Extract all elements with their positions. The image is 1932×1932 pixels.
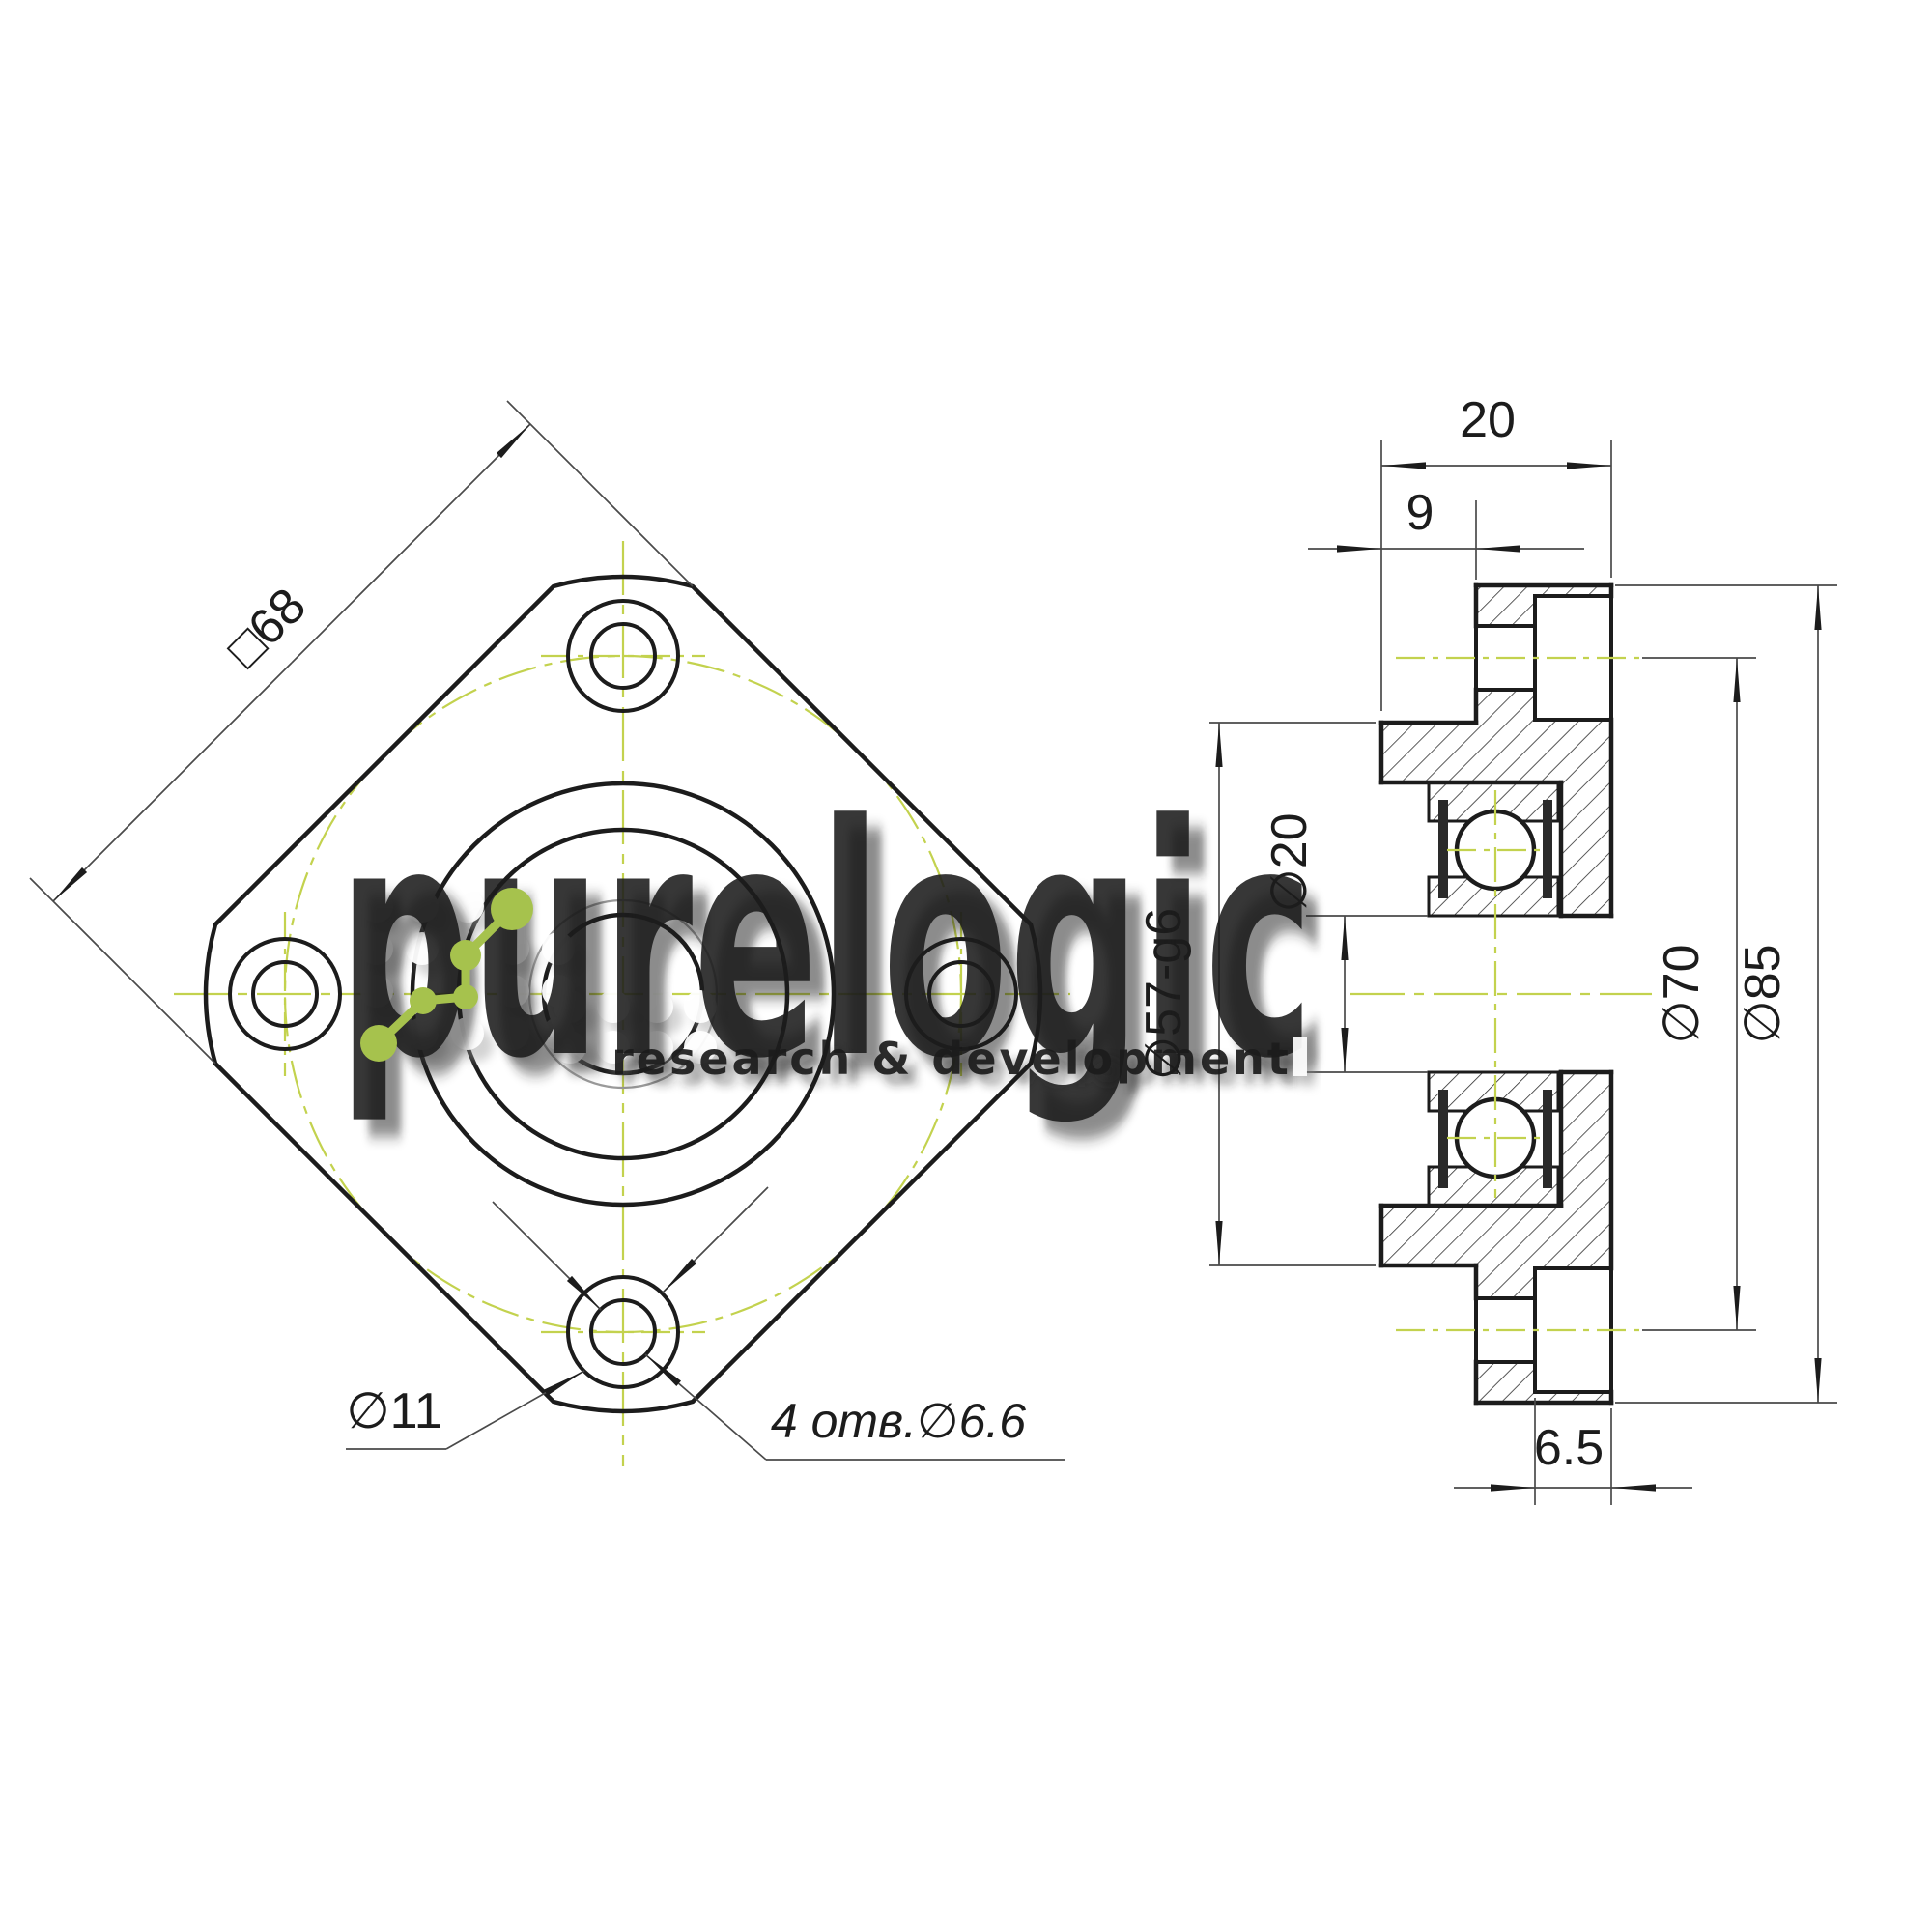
bearing-seal: [1543, 1090, 1552, 1188]
dim-bolt-circle: ∅70: [1654, 944, 1710, 1043]
logo-dot: [491, 888, 533, 930]
logo-dot: [453, 984, 478, 1009]
tagline-end-block: [1293, 1037, 1307, 1076]
drawing-page: □68 ∅11 4 отв.∅6.6: [0, 0, 1932, 1932]
dim-flange-diameter: ∅85: [1735, 944, 1791, 1043]
dim-line: [292, 424, 530, 663]
dim-square-size: □68: [216, 578, 317, 678]
logo-dot: [410, 987, 437, 1014]
hatch-wall-bottom: [1561, 1072, 1611, 1206]
logo-dot: [360, 1025, 397, 1062]
dim-counterbore-depth: 6.5: [1534, 1420, 1604, 1476]
extension-line: [30, 878, 215, 1064]
bearing-seal: [1543, 800, 1552, 898]
dim-overall-width: 20: [1460, 392, 1516, 448]
counterbore-depth-dimension: 6.5: [1454, 1398, 1692, 1505]
dim-line: [53, 663, 292, 901]
logo-dot: [450, 940, 481, 971]
dim-arrow: [663, 1187, 768, 1293]
dim-bolt-holes: 4 отв.∅6.6: [771, 1394, 1026, 1448]
spigot-length-dimension: 9: [1308, 485, 1584, 580]
leader-line: [446, 1371, 584, 1449]
watermark-tagline: research & development research & develo…: [611, 1033, 1315, 1094]
hatch-spigot-bottom: [1381, 1206, 1476, 1265]
dim-arrow: [493, 1202, 601, 1310]
hatch-spigot-top: [1381, 723, 1476, 782]
bearing-seal: [1438, 1090, 1448, 1188]
counterbore-dimension: ∅11: [346, 1187, 768, 1449]
hatch-wall-top: [1561, 782, 1611, 916]
technical-drawing: □68 ∅11 4 отв.∅6.6: [0, 0, 1932, 1932]
extension-line: [507, 401, 693, 586]
bolt-holes-dimension: 4 отв.∅6.6: [493, 1202, 1065, 1460]
tagline-text: research & development: [611, 1033, 1292, 1085]
dim-spigot-length: 9: [1406, 485, 1435, 541]
dim-counterbore: ∅11: [346, 1383, 441, 1439]
watermark: purelogic purelogic research & developme…: [338, 757, 1330, 1146]
bearing-seal: [1438, 800, 1448, 898]
